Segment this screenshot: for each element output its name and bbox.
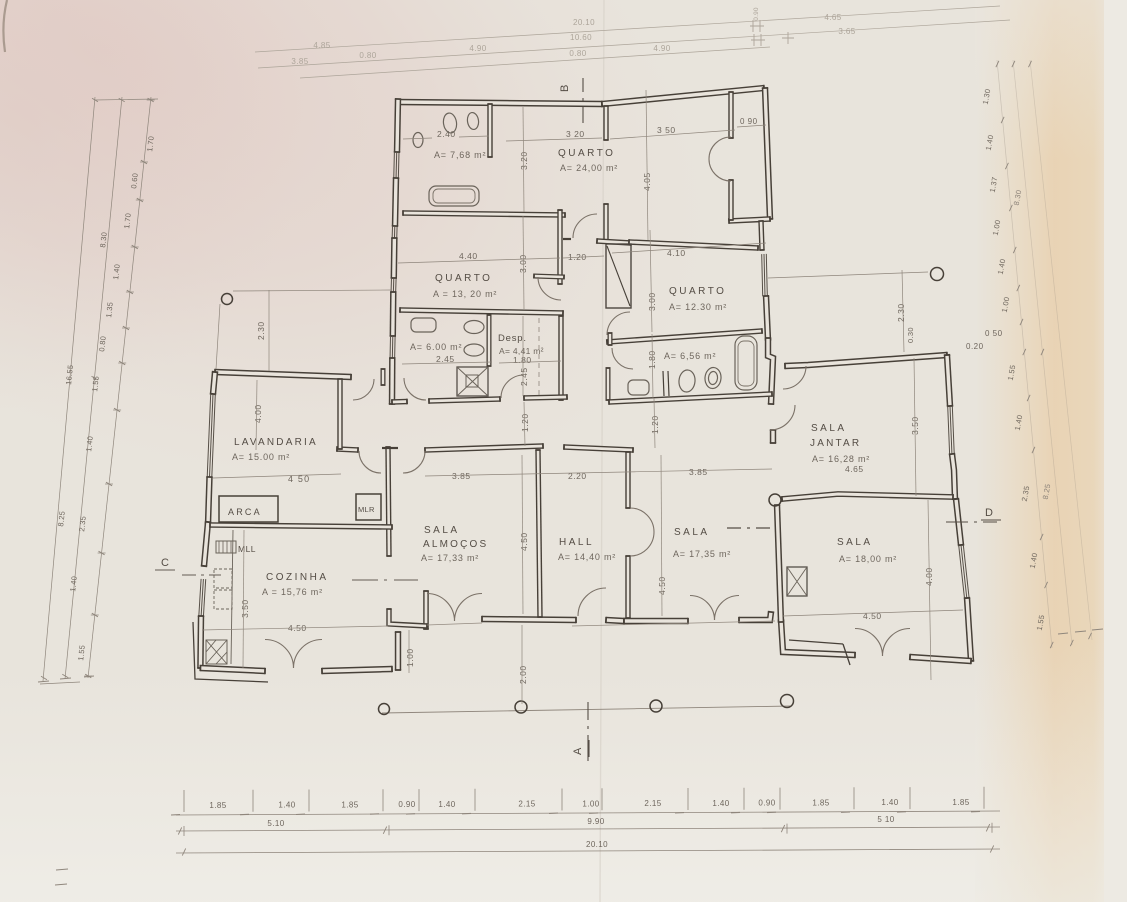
svg-text:A= 6,56 m²: A= 6,56 m² [664,351,716,361]
svg-text:3 50: 3 50 [657,125,676,135]
svg-text:8.25: 8.25 [56,510,67,527]
svg-text:QUARTO: QUARTO [558,148,615,159]
svg-text:QUARTO: QUARTO [435,273,492,284]
svg-text:4.90: 4.90 [469,44,486,53]
svg-text:20.10: 20.10 [573,18,595,27]
svg-text:3.85: 3.85 [689,467,708,477]
svg-text:0.90: 0.90 [758,799,775,808]
svg-text:3.50: 3.50 [240,599,250,618]
svg-text:D: D [985,507,993,519]
svg-text:C: C [161,557,169,569]
svg-text:2.30: 2.30 [896,303,906,322]
svg-text:A= 16,28 m²: A= 16,28 m² [812,454,870,464]
svg-text:3.20: 3.20 [519,151,529,170]
svg-text:1.35: 1.35 [104,301,115,318]
svg-text:1.85: 1.85 [812,798,829,807]
svg-text:A= 18,00 m²: A= 18,00 m² [839,554,897,564]
svg-text:2.35: 2.35 [77,515,88,532]
svg-text:1.85: 1.85 [952,798,969,807]
svg-text:A= 17,35 m²: A= 17,35 m² [673,549,731,559]
svg-text:1.40: 1.40 [278,801,295,810]
svg-text:SALA: SALA [837,537,873,548]
svg-text:0 50: 0 50 [985,329,1003,338]
svg-text:9.90: 9.90 [587,817,604,826]
svg-text:3.00: 3.00 [518,254,528,273]
svg-text:10.60: 10.60 [570,33,592,42]
svg-text:Desp.: Desp. [498,333,527,344]
svg-text:SALA: SALA [674,527,710,538]
svg-text:1.40: 1.40 [84,435,95,452]
svg-text:0.20: 0.20 [966,342,984,351]
svg-text:0.80: 0.80 [359,51,376,60]
svg-text:ALMOÇOS: ALMOÇOS [423,539,488,550]
svg-text:A = 13, 20 m²: A = 13, 20 m² [433,289,497,299]
svg-text:B: B [559,85,571,92]
svg-text:4.50: 4.50 [519,532,529,551]
svg-text:2.15: 2.15 [644,799,661,808]
svg-text:2.15: 2.15 [518,800,535,809]
svg-text:2.45: 2.45 [436,354,455,364]
svg-text:4.85: 4.85 [313,41,330,50]
svg-text:0.80: 0.80 [97,335,108,352]
svg-text:1.85: 1.85 [341,800,358,809]
svg-text:0 90: 0 90 [740,117,758,126]
svg-text:3.85: 3.85 [291,57,308,66]
svg-text:1.70: 1.70 [145,135,156,152]
svg-text:0.30: 0.30 [906,327,915,343]
svg-text:A = 15,76 m²: A = 15,76 m² [262,587,323,597]
svg-text:SALA: SALA [424,525,460,536]
svg-text:1.55: 1.55 [90,375,101,392]
svg-text:4.00: 4.00 [253,404,263,423]
svg-text:1.00: 1.00 [405,648,415,667]
svg-text:3.65: 3.65 [838,27,855,36]
svg-text:3 20: 3 20 [566,129,585,139]
svg-text:JANTAR: JANTAR [810,438,861,449]
svg-text:HALL: HALL [559,537,594,548]
svg-text:4.90: 4.90 [653,44,670,53]
svg-text:SALA: SALA [811,423,847,434]
svg-text:A= 15.00 m²: A= 15.00 m² [232,452,290,462]
svg-text:0.90: 0.90 [398,800,415,809]
svg-text:A= 6.00 m²: A= 6.00 m² [410,342,462,352]
svg-text:2.45: 2.45 [519,367,529,386]
svg-text:1.40: 1.40 [111,263,122,280]
svg-text:0.90: 0.90 [753,7,760,21]
svg-text:2.00: 2.00 [518,665,528,684]
svg-text:1.85: 1.85 [209,801,226,810]
svg-text:A= 12.30 m²: A= 12.30 m² [669,302,727,312]
svg-text:0.60: 0.60 [129,172,140,189]
svg-text:LAVANDARIA: LAVANDARIA [234,437,318,448]
svg-text:2.30: 2.30 [256,321,266,340]
svg-text:1.20: 1.20 [520,413,530,432]
svg-text:MLL: MLL [238,544,256,554]
svg-text:4.40: 4.40 [459,251,478,261]
svg-text:3.85: 3.85 [452,471,471,481]
svg-text:1.40: 1.40 [881,798,898,807]
svg-text:A: A [572,747,584,755]
svg-text:5.10: 5.10 [267,819,284,828]
svg-text:3.00: 3.00 [647,292,657,311]
svg-text:ARCA: ARCA [228,507,262,517]
svg-text:A= 24,00 m²: A= 24,00 m² [560,163,618,173]
svg-text:4.65: 4.65 [824,13,841,22]
svg-text:1.40: 1.40 [438,800,455,809]
svg-text:A= 17,33 m²: A= 17,33 m² [421,553,479,563]
svg-text:1.70: 1.70 [122,212,133,229]
svg-text:QUARTO: QUARTO [669,286,726,297]
svg-text:1.55: 1.55 [76,644,87,661]
svg-text:A= 14,40 m²: A= 14,40 m² [558,552,616,562]
svg-text:1.40: 1.40 [68,575,79,592]
svg-text:20.10: 20.10 [586,840,608,849]
svg-text:5 10: 5 10 [877,815,894,824]
svg-text:1.00: 1.00 [582,799,599,808]
svg-text:MLR: MLR [358,505,375,514]
svg-text:1.80: 1.80 [513,355,532,365]
svg-text:4.65: 4.65 [845,464,864,474]
svg-text:0.80: 0.80 [569,49,586,58]
svg-text:1.40: 1.40 [712,799,729,808]
svg-text:8.30: 8.30 [98,231,109,248]
svg-text:A= 7,68 m²: A= 7,68 m² [434,150,486,160]
svg-text:2.40: 2.40 [437,129,456,139]
svg-text:COZINHA: COZINHA [266,572,329,583]
